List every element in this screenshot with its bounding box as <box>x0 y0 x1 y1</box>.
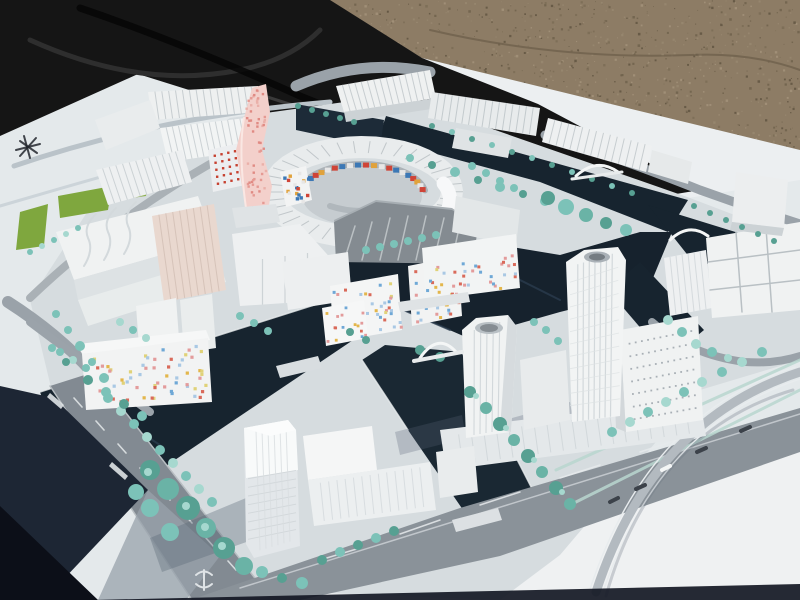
gravel-texture <box>636 22 638 24</box>
window-grid <box>661 362 663 364</box>
gravel-texture <box>364 5 366 7</box>
gravel-texture <box>736 28 738 30</box>
gravel-texture <box>542 73 544 75</box>
window-grid <box>686 357 688 359</box>
gravel-texture <box>372 14 373 15</box>
tree-row <box>56 348 64 356</box>
tree-masses-northeast <box>600 217 612 229</box>
gravel-texture <box>540 69 542 71</box>
gravel-texture <box>709 6 711 8</box>
tree-row <box>351 119 357 125</box>
gravel-texture <box>580 81 582 83</box>
gravel-texture <box>582 89 584 91</box>
gravel-texture <box>551 5 553 7</box>
gravel-texture <box>608 5 609 6</box>
gravel-texture <box>516 55 519 58</box>
confetti-windows <box>113 385 116 388</box>
confetti-windows <box>376 313 379 316</box>
gravel-texture <box>638 102 639 103</box>
tree-row-canal-top <box>474 176 482 184</box>
confetti-windows <box>193 395 196 398</box>
mosaic-tiles <box>386 166 392 171</box>
tree-row-rim <box>449 129 455 135</box>
confetti-windows <box>200 370 203 373</box>
gravel-texture <box>775 134 777 136</box>
gravel-texture <box>593 13 595 15</box>
gravel-texture <box>541 61 543 63</box>
window-grid <box>668 373 670 375</box>
confetti-windows <box>429 280 432 283</box>
confetti-windows <box>170 392 173 395</box>
gravel-texture <box>793 108 795 110</box>
gravel-texture <box>620 74 622 76</box>
tree-row <box>142 334 150 342</box>
gravel-texture <box>501 55 503 57</box>
gravel-texture <box>356 10 358 12</box>
confetti-windows <box>379 328 382 331</box>
tree-row <box>116 318 124 326</box>
red-window-grid <box>224 181 226 183</box>
window-grid <box>633 406 635 408</box>
gravel-texture <box>600 47 601 48</box>
gravel-texture <box>685 22 686 23</box>
confetti-windows <box>371 302 374 305</box>
tree-row-cluster-east <box>724 354 732 362</box>
window-grid <box>631 381 633 383</box>
gravel-texture <box>569 26 571 28</box>
window-grid <box>643 378 645 380</box>
gravel-texture <box>456 60 458 62</box>
gravel-texture <box>568 9 569 10</box>
gravel-texture <box>564 39 565 40</box>
gravel-texture <box>655 46 656 47</box>
gravel-texture <box>632 16 634 18</box>
gravel-texture <box>504 41 506 43</box>
gravel-texture <box>457 9 458 10</box>
gravel-texture <box>790 57 792 59</box>
tree-row <box>542 326 550 334</box>
gravel-texture <box>403 22 405 24</box>
gravel-texture <box>775 30 776 31</box>
tree-row <box>82 364 90 372</box>
confetti-windows <box>426 289 429 292</box>
gravel-texture <box>509 35 511 37</box>
gravel-texture <box>576 41 577 42</box>
gravel-texture <box>782 122 783 123</box>
gravel-texture <box>657 101 658 102</box>
confetti-windows <box>436 306 439 309</box>
gravel-texture <box>489 18 490 19</box>
tree-row-bottom <box>335 547 345 557</box>
gravel-texture <box>747 46 748 47</box>
gravel-texture <box>731 77 732 78</box>
gravel-texture <box>468 10 471 13</box>
gravel-texture <box>686 95 688 97</box>
gravel-texture <box>741 111 742 112</box>
gravel-texture <box>766 25 768 27</box>
gravel-texture <box>608 41 610 43</box>
gravel-texture <box>778 23 779 24</box>
tree-row <box>64 326 72 334</box>
tree-pompoms <box>144 468 152 476</box>
confetti-windows <box>175 381 178 384</box>
gravel-texture <box>689 17 690 18</box>
confetti-windows <box>153 386 156 389</box>
architectural-model-photo: Outdoor photo of a white architectural c… <box>0 0 800 600</box>
gravel-texture <box>613 92 614 93</box>
gravel-texture <box>736 61 738 63</box>
gravel-texture <box>790 83 792 85</box>
confetti-windows <box>342 326 345 329</box>
gravel-texture <box>736 72 738 74</box>
gravel-texture <box>768 88 771 91</box>
gravel-texture <box>619 67 620 68</box>
gravel-texture <box>439 23 440 24</box>
gravel-texture <box>785 83 787 85</box>
gravel-texture <box>703 47 704 48</box>
gravel-texture <box>398 4 400 6</box>
tree-row-road <box>207 497 217 507</box>
tree-row-road <box>168 458 178 468</box>
gravel-texture <box>507 10 509 12</box>
gravel-texture <box>594 9 595 10</box>
gravel-texture <box>507 64 509 66</box>
model-scene-canvas <box>0 0 800 600</box>
gravel-texture <box>672 86 674 88</box>
gravel-texture <box>744 2 746 4</box>
window-grid <box>658 414 660 416</box>
gravel-texture <box>694 78 696 80</box>
gravel-texture <box>733 0 735 2</box>
gravel-texture <box>534 73 535 74</box>
gravel-texture <box>568 29 570 31</box>
gravel-texture <box>724 88 725 89</box>
gravel-texture <box>531 27 532 28</box>
gravel-texture <box>418 17 419 18</box>
gravel-texture <box>681 89 682 90</box>
gravel-texture <box>759 114 761 116</box>
gravel-texture <box>668 99 670 101</box>
gravel-texture <box>438 1 439 2</box>
mosaic-barrel-tiles <box>297 193 300 196</box>
gravel-texture <box>454 30 455 31</box>
window-grid <box>640 417 642 419</box>
tree-row <box>99 373 109 383</box>
spiral-tower-dots <box>262 163 264 165</box>
gravel-texture <box>676 91 678 93</box>
gravel-texture <box>776 126 777 127</box>
gravel-texture <box>667 32 669 34</box>
gravel-texture <box>667 52 668 53</box>
tree-row-rim <box>429 123 435 129</box>
confetti-windows <box>141 364 144 367</box>
confetti-windows <box>188 348 191 351</box>
gravel-texture <box>764 46 766 48</box>
gravel-texture <box>632 63 634 65</box>
gravel-texture <box>793 146 794 147</box>
window-grid <box>685 344 687 346</box>
window-grid <box>693 369 695 371</box>
gravel-texture <box>760 98 762 100</box>
gravel-texture <box>674 52 676 54</box>
gravel-texture <box>629 18 630 19</box>
gravel-texture <box>360 15 362 17</box>
tree-row <box>51 237 57 243</box>
tree-row <box>264 327 272 335</box>
confetti-windows <box>360 322 363 325</box>
gravel-texture <box>751 101 752 102</box>
gravel-texture <box>780 9 782 11</box>
tree-row-rim-east <box>755 231 761 237</box>
building-slab <box>664 250 712 316</box>
tree-masses-northeast <box>579 208 593 222</box>
gravel-texture <box>773 141 775 143</box>
gravel-texture <box>641 47 643 49</box>
tree-row <box>27 249 33 255</box>
gravel-texture <box>488 64 489 65</box>
tree-row-road-east <box>661 397 671 407</box>
spiral-tower-dots <box>253 171 255 173</box>
tree-row-road <box>129 419 139 429</box>
mosaic-barrel-tiles <box>307 177 310 180</box>
gravel-texture <box>606 43 607 44</box>
gravel-texture <box>579 78 580 79</box>
confetti-windows <box>435 268 438 271</box>
spiral-tower-dots <box>256 89 258 91</box>
mosaic-tiles <box>371 163 377 168</box>
gravel-texture <box>766 97 768 99</box>
confetti-windows <box>175 376 178 379</box>
gravel-texture <box>575 14 577 16</box>
gravel-texture <box>785 1 787 3</box>
gravel-texture <box>599 94 601 96</box>
gravel-texture <box>739 125 740 126</box>
confetti-windows <box>200 350 203 353</box>
confetti-windows <box>199 396 202 399</box>
gravel-texture <box>767 84 769 86</box>
gravel-texture <box>572 67 574 69</box>
gravel-texture <box>729 8 731 10</box>
gravel-texture <box>524 29 525 30</box>
gravel-texture <box>630 84 632 86</box>
gravel-texture <box>563 81 564 82</box>
gravel-texture <box>576 90 579 93</box>
gravel-texture <box>588 5 589 6</box>
confetti-windows <box>389 297 392 300</box>
spiral-tower-dots <box>265 170 267 172</box>
gravel-texture <box>768 79 771 82</box>
gravel-texture <box>539 76 541 78</box>
gravel-texture <box>709 3 711 5</box>
gravel-texture <box>646 32 647 33</box>
window-grid <box>676 398 678 400</box>
confetti-windows <box>514 272 517 275</box>
tree-row-road-east <box>757 347 767 357</box>
red-window-grid <box>216 176 218 178</box>
gravel-texture <box>700 98 702 100</box>
gravel-texture <box>723 70 724 71</box>
red-window-grid <box>220 153 222 155</box>
gravel-texture <box>790 129 791 130</box>
gravel-texture <box>786 146 787 147</box>
red-window-grid <box>230 180 232 182</box>
gravel-texture <box>417 42 419 44</box>
gravel-texture <box>612 49 614 51</box>
tree-masses-bottom <box>161 523 179 541</box>
gravel-texture <box>416 22 417 23</box>
mosaic-tiles <box>363 163 369 168</box>
gravel-texture <box>539 30 540 31</box>
confetti-windows <box>459 282 462 285</box>
gravel-texture <box>758 80 761 83</box>
gravel-texture <box>635 103 636 104</box>
tree-row-road <box>142 432 152 442</box>
gravel-texture <box>592 17 593 18</box>
gravel-texture <box>552 21 554 23</box>
tree-row <box>496 177 504 185</box>
gravel-texture <box>677 26 678 27</box>
red-window-grid <box>227 152 229 154</box>
confetti-windows <box>327 340 330 343</box>
window-grid <box>666 348 668 350</box>
gravel-texture <box>750 15 751 16</box>
window-grid <box>650 377 652 379</box>
confetti-windows <box>170 358 173 361</box>
gravel-texture <box>715 64 716 65</box>
gravel-texture <box>784 139 787 142</box>
gravel-texture <box>595 1 596 2</box>
mosaic-barrel-tiles <box>289 174 292 177</box>
gravel-texture <box>411 7 413 9</box>
gravel-texture <box>604 22 606 24</box>
gravel-texture <box>685 40 686 41</box>
gravel-texture <box>349 7 350 8</box>
confetti-windows <box>122 382 125 385</box>
confetti-windows <box>507 264 510 267</box>
gravel-texture <box>552 37 554 39</box>
window-grid <box>655 363 657 365</box>
window-grid <box>688 396 690 398</box>
gravel-texture <box>662 42 664 44</box>
gravel-texture <box>791 60 793 62</box>
gravel-texture <box>746 75 748 77</box>
gravel-texture <box>792 42 793 43</box>
confetti-windows <box>390 312 393 315</box>
gravel-texture <box>497 29 499 31</box>
spiral-tower-dots <box>245 108 247 110</box>
tree-row-canal-south <box>508 434 520 446</box>
building-salmon <box>152 204 226 302</box>
gravel-texture <box>575 79 576 80</box>
window-grid <box>695 407 697 409</box>
gravel-texture <box>758 134 759 135</box>
gravel-texture <box>502 31 503 32</box>
mosaic-barrel-tiles <box>302 180 305 183</box>
confetti-windows <box>471 269 474 272</box>
window-grid <box>632 393 634 395</box>
gravel-texture <box>578 51 579 52</box>
tree-row-rim <box>489 142 495 148</box>
mosaic-tiles <box>313 173 319 178</box>
gravel-texture <box>791 78 792 79</box>
gravel-texture <box>793 21 795 23</box>
tree-row-rim <box>569 169 575 175</box>
gravel-texture <box>448 8 450 10</box>
confetti-windows <box>452 285 455 288</box>
gravel-texture <box>653 6 654 7</box>
gravel-texture <box>433 46 435 48</box>
gravel-texture <box>775 51 777 53</box>
gravel-texture <box>781 133 782 134</box>
tree-row-rim <box>509 149 515 155</box>
gravel-texture <box>508 67 510 69</box>
confetti-windows <box>135 386 138 389</box>
confetti-windows <box>399 321 402 324</box>
red-window-grid <box>214 162 216 164</box>
gravel-texture <box>642 2 643 3</box>
gravel-texture <box>587 66 588 67</box>
gravel-texture <box>648 53 650 55</box>
gravel-texture <box>759 0 761 2</box>
gravel-texture <box>655 39 657 41</box>
gravel-texture <box>569 46 570 47</box>
confetti-windows <box>334 327 337 330</box>
gravel-texture <box>513 71 515 73</box>
gravel-texture <box>619 90 621 92</box>
gravel-texture <box>706 104 708 106</box>
gravel-texture <box>513 30 515 32</box>
gravel-texture <box>364 13 366 15</box>
gravel-texture <box>690 95 691 96</box>
tree-pompoms <box>559 489 565 495</box>
window-grid <box>673 359 675 361</box>
gravel-texture <box>638 104 640 106</box>
spiral-tower-dots <box>247 162 249 164</box>
spiral-tower-dots <box>257 97 259 99</box>
spiral-tower-dots <box>250 119 252 121</box>
gravel-texture <box>371 23 372 24</box>
gravel-texture <box>649 61 650 62</box>
gravel-texture <box>522 70 523 71</box>
tree-masses-northeast <box>558 199 574 215</box>
tree-row-cluster-east <box>677 327 687 337</box>
confetti-windows <box>511 254 514 257</box>
gravel-texture <box>787 97 789 99</box>
gravel-texture <box>681 22 683 24</box>
gravel-texture <box>419 4 421 6</box>
spiral-tower-dots <box>250 104 252 106</box>
tree-row-rim-east <box>723 217 729 223</box>
confetti-windows <box>333 291 336 294</box>
gravel-texture <box>675 41 676 42</box>
gravel-texture <box>661 49 662 50</box>
spiral-tower-dots <box>261 173 263 175</box>
gravel-texture <box>462 33 464 35</box>
gravel-texture <box>638 44 641 47</box>
gravel-texture <box>742 25 744 27</box>
tree-row-bottom <box>353 540 363 550</box>
confetti-windows <box>200 373 203 376</box>
gravel-texture <box>760 37 761 38</box>
gravel-texture <box>414 51 415 52</box>
window-grid <box>654 350 656 352</box>
gravel-texture <box>527 52 528 53</box>
gravel-texture <box>623 57 624 58</box>
gravel-texture <box>587 64 589 66</box>
gravel-texture <box>549 31 551 33</box>
mosaic-barrel-tiles <box>288 191 291 194</box>
tree-row-cluster-east <box>707 347 717 357</box>
